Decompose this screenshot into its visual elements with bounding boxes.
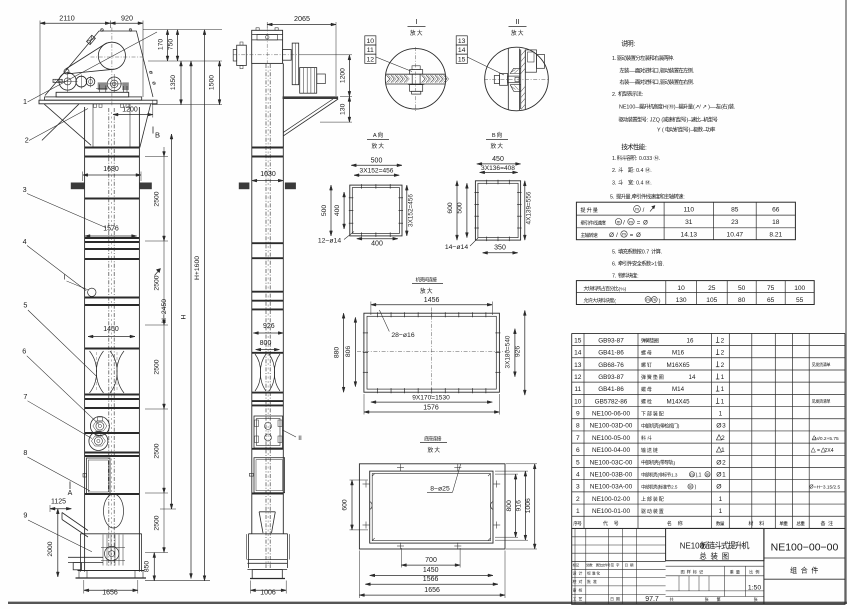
svg-text:M16X65: M16X65 (666, 362, 690, 369)
svg-text:4X139=556: 4X139=556 (525, 191, 532, 224)
svg-text:3X180=540: 3X180=540 (504, 335, 511, 368)
svg-text:8: 8 (576, 423, 580, 430)
svg-text:700: 700 (425, 557, 437, 564)
svg-text:=H−3.15/2.5: =H−3.15/2.5 (814, 485, 841, 491)
svg-text:(↗/ ↗ )——: (↗/ ↗ )—— (693, 105, 721, 111)
svg-text:1350: 1350 (170, 75, 177, 90)
svg-text:130: 130 (340, 103, 347, 115)
svg-text:NE100: NE100 (680, 542, 705, 551)
svg-text:5.: 5. (610, 195, 614, 201)
svg-text:400: 400 (371, 241, 383, 248)
svg-text:800: 800 (260, 340, 272, 347)
svg-text:9: 9 (576, 411, 580, 418)
svg-text:Ø: Ø (716, 484, 722, 491)
svg-text:1: 1 (719, 411, 723, 418)
svg-text:4: 4 (23, 237, 27, 246)
svg-text:7: 7 (23, 392, 27, 401)
svg-text:400: 400 (334, 205, 341, 217)
svg-text:7: 7 (576, 435, 580, 442)
svg-text:1: 1 (721, 447, 725, 454)
svg-text:1: 1 (576, 508, 580, 515)
svg-text:105: 105 (706, 297, 717, 304)
svg-text:9: 9 (23, 511, 27, 520)
svg-text:=H/0.2+5.75: =H/0.2+5.75 (812, 436, 839, 442)
svg-text:10: 10 (677, 285, 685, 292)
svg-text:GB41-86: GB41-86 (598, 386, 624, 393)
svg-text:600: 600 (447, 202, 454, 214)
svg-text:I: I (64, 275, 66, 282)
svg-text:H: H (181, 314, 188, 319)
svg-text:97.7: 97.7 (645, 596, 659, 603)
svg-text:NE100-03B-00: NE100-03B-00 (590, 471, 633, 478)
svg-text:1: 1 (721, 374, 725, 381)
svg-text:8−ø25: 8−ø25 (430, 486, 450, 493)
svg-text:25: 25 (708, 285, 716, 292)
svg-text:110: 110 (684, 207, 695, 214)
svg-text:1: 1 (721, 386, 725, 393)
svg-text:3: 3 (23, 185, 27, 194)
svg-text:2: 2 (721, 350, 725, 357)
svg-text:: 0.4 Ⓜ.: : 0.4 Ⓜ. (633, 166, 652, 174)
svg-text:926: 926 (515, 346, 522, 358)
svg-text:1200: 1200 (122, 106, 138, 113)
svg-text:450: 450 (492, 156, 504, 163)
svg-text::: : (634, 41, 636, 48)
svg-text:170: 170 (158, 39, 165, 51)
svg-text:NE100-05-00: NE100-05-00 (592, 435, 630, 442)
svg-text:1.: 1. (612, 156, 616, 162)
svg-text:14.13: 14.13 (681, 232, 698, 239)
svg-text:>1: >1 (651, 262, 657, 268)
svg-text:130: 130 (676, 297, 687, 304)
svg-text:1576: 1576 (423, 404, 439, 411)
svg-text:NE100-03D-00: NE100-03D-00 (590, 423, 633, 430)
svg-text:600: 600 (342, 499, 349, 511)
svg-text:12−ø14: 12−ø14 (318, 238, 341, 245)
svg-text:: 0.4 Ⓜ.: : 0.4 Ⓜ. (633, 179, 652, 187)
svg-text:GB93-87: GB93-87 (598, 374, 624, 381)
svg-text:2X4: 2X4 (824, 448, 833, 454)
svg-text:926: 926 (263, 323, 275, 330)
svg-text:2500: 2500 (154, 359, 161, 374)
svg-text:6: 6 (22, 346, 26, 355)
svg-text:1200: 1200 (340, 68, 347, 83)
svg-text:NE100-04-00: NE100-04-00 (592, 447, 630, 454)
svg-text:2000: 2000 (47, 541, 54, 556)
svg-text:100: 100 (794, 285, 805, 292)
svg-text:13: 13 (574, 362, 582, 369)
svg-text:I: I (415, 17, 417, 26)
svg-text:1: 1 (719, 496, 723, 503)
svg-text:),1: ),1 (696, 472, 702, 478)
svg-text:1576: 1576 (103, 226, 119, 233)
svg-text:m: m (622, 232, 626, 237)
svg-text:2.5: 2.5 (671, 485, 678, 490)
svg-text:GB41-86: GB41-86 (598, 350, 624, 357)
svg-text:m: m (629, 219, 633, 224)
svg-text:NE100-01-00: NE100-01-00 (592, 508, 630, 515)
svg-text::: : (637, 274, 638, 280)
svg-text:7.: 7. (612, 274, 616, 280)
svg-text:1656: 1656 (424, 587, 440, 594)
svg-text:,: , (631, 195, 632, 201)
svg-text:1125: 1125 (51, 499, 66, 506)
svg-text:10.47: 10.47 (727, 232, 744, 239)
svg-text:2500: 2500 (154, 191, 161, 206)
svg-text:m: m (706, 472, 710, 477)
svg-text:.: . (734, 105, 735, 111)
svg-text:H(Ⓜ)——: H(Ⓜ)—— (663, 103, 687, 111)
svg-text:14: 14 (458, 47, 466, 54)
svg-text:,: , (659, 69, 660, 75)
svg-text:2: 2 (576, 496, 580, 503)
svg-text:Ø: Ø (643, 221, 648, 227)
svg-text:): ) (727, 105, 729, 111)
svg-text:1450: 1450 (423, 567, 439, 574)
svg-text:=: = (817, 448, 820, 454)
svg-text:2110: 2110 (59, 14, 74, 23)
svg-text:B: B (492, 133, 496, 139)
svg-text:12: 12 (367, 56, 375, 63)
svg-text:6: 6 (576, 447, 580, 454)
svg-text:II: II (515, 17, 519, 26)
svg-text:5.: 5. (612, 250, 616, 256)
svg-text:GB93-87: GB93-87 (598, 337, 624, 344)
svg-text:2: 2 (721, 362, 725, 369)
svg-text:m: m (635, 207, 639, 212)
svg-text:50: 50 (738, 285, 746, 292)
svg-text:350: 350 (494, 245, 506, 252)
svg-text:14: 14 (574, 350, 582, 357)
svg-text:65: 65 (767, 297, 775, 304)
svg-text:10: 10 (367, 38, 375, 45)
svg-text:m: m (617, 219, 621, 224)
svg-text:1: 1 (23, 97, 27, 106)
svg-text:14−ø14: 14−ø14 (445, 244, 468, 251)
svg-text:880: 880 (333, 347, 340, 359)
svg-text:m: m (690, 472, 694, 477)
svg-text:3: 3 (576, 484, 580, 491)
svg-text:.: . (693, 69, 694, 75)
svg-text:,: , (659, 80, 660, 86)
svg-text:800: 800 (506, 500, 513, 512)
svg-text:14: 14 (689, 374, 696, 381)
svg-text:.: . (673, 56, 674, 62)
svg-text:3X152=456: 3X152=456 (407, 194, 414, 227)
svg-text:II: II (298, 435, 302, 442)
svg-text::: : (683, 195, 684, 201)
svg-text:H+1600: H+1600 (194, 256, 201, 280)
svg-text:1500: 1500 (209, 75, 216, 90)
svg-text:Ø: Ø (636, 233, 641, 239)
svg-text:): ) (659, 298, 661, 304)
svg-text:GB68-76: GB68-76 (598, 362, 624, 369)
svg-text:12: 12 (574, 374, 582, 381)
svg-text:NE100−00−00: NE100−00−00 (771, 542, 839, 554)
svg-text:10: 10 (574, 398, 582, 405)
svg-text:850: 850 (144, 561, 151, 573)
svg-text:NE100-03A-00: NE100-03A-00 (590, 484, 633, 491)
svg-text:75: 75 (767, 285, 775, 292)
svg-text:.: . (661, 250, 662, 256)
svg-text:1680: 1680 (103, 166, 119, 173)
svg-text:Ø: Ø (609, 232, 614, 239)
svg-text:: 0.033 Ⓜ.: : 0.033 Ⓜ. (636, 154, 661, 162)
svg-text::: : (645, 145, 647, 152)
svg-text:(%): (%) (619, 286, 627, 292)
svg-text:=: = (630, 233, 634, 239)
svg-text:NE100-02-00: NE100-02-00 (592, 496, 630, 503)
svg-text:0.7: 0.7 (642, 250, 649, 256)
svg-text:23: 23 (731, 219, 739, 226)
svg-text:2: 2 (721, 435, 725, 442)
svg-text:)—: )— (689, 128, 697, 134)
svg-text:m: m (646, 297, 650, 302)
svg-text:9X170=1530: 9X170=1530 (412, 395, 450, 402)
svg-text:1: 1 (721, 398, 725, 405)
svg-text:B: B (155, 131, 160, 140)
svg-text:5: 5 (23, 301, 27, 310)
svg-text:2500: 2500 (154, 443, 161, 458)
svg-text:GB5782-86: GB5782-86 (595, 398, 628, 405)
svg-text:18: 18 (772, 219, 780, 226)
svg-text:1450: 1450 (103, 326, 119, 333)
svg-text:80: 80 (738, 297, 746, 304)
svg-text:.: . (693, 80, 694, 86)
svg-text:1:50: 1:50 (748, 585, 761, 592)
svg-text:.: . (662, 262, 663, 268)
svg-text:6.: 6. (612, 262, 616, 268)
svg-text:NE100-03C-00: NE100-03C-00 (590, 459, 633, 466)
svg-text:15: 15 (458, 56, 466, 63)
svg-text:5: 5 (576, 459, 580, 466)
svg-text:8.21: 8.21 (769, 232, 782, 239)
svg-text:1566: 1566 (423, 576, 439, 583)
svg-text:920: 920 (121, 14, 133, 23)
svg-text:500: 500 (371, 157, 383, 164)
svg-text:1456: 1456 (424, 297, 440, 304)
svg-text:2: 2 (722, 459, 726, 466)
svg-text:13: 13 (458, 38, 466, 45)
svg-text:55: 55 (796, 297, 804, 304)
svg-text:3: 3 (722, 423, 726, 430)
svg-text:66: 66 (772, 207, 780, 214)
svg-text:2: 2 (721, 337, 725, 344)
svg-text:NE100-06-00: NE100-06-00 (592, 411, 630, 418)
svg-text:2500: 2500 (154, 275, 161, 290)
svg-text:4: 4 (576, 471, 580, 478)
svg-text:2065: 2065 (294, 14, 310, 23)
svg-text:1: 1 (719, 508, 723, 515)
svg-text:1030: 1030 (260, 171, 276, 178)
svg-text:500: 500 (457, 202, 464, 214)
svg-text:A: A (68, 490, 73, 497)
svg-text:A: A (373, 133, 377, 139)
svg-text:H−2450: H−2450 (161, 299, 168, 323)
svg-text:2.: 2. (612, 92, 616, 98)
svg-text:11: 11 (367, 47, 374, 54)
svg-text:28−ø16: 28−ø16 (391, 332, 414, 339)
svg-text:M14: M14 (672, 386, 685, 393)
svg-text:Y (: Y ( (657, 128, 664, 134)
svg-text:M16: M16 (672, 350, 685, 357)
svg-text:=: = (637, 221, 641, 227)
svg-text:916: 916 (515, 500, 522, 512)
svg-text:85: 85 (731, 207, 739, 214)
svg-text:11: 11 (574, 386, 581, 393)
svg-text:1.: 1. (612, 56, 616, 62)
svg-text:2500: 2500 (154, 515, 161, 530)
svg-text:750: 750 (168, 39, 175, 51)
svg-text:1.3: 1.3 (671, 472, 678, 477)
svg-text:3X152=456: 3X152=456 (360, 168, 394, 175)
svg-text:m: m (689, 484, 693, 489)
svg-text:15: 15 (574, 337, 582, 344)
svg-text:M14X45: M14X45 (666, 398, 690, 405)
svg-text:806: 806 (345, 346, 352, 358)
svg-text:500: 500 (321, 205, 328, 217)
svg-text:m: m (652, 297, 656, 302)
svg-text:3X136=408: 3X136=408 (481, 165, 515, 172)
svg-text:16: 16 (687, 337, 694, 344)
svg-text:3.: 3. (612, 181, 616, 187)
svg-text:1: 1 (722, 471, 726, 478)
svg-text:: JZQ (: : JZQ ( (647, 118, 664, 124)
svg-text:1006: 1006 (525, 498, 532, 513)
svg-text:2: 2 (25, 136, 29, 145)
svg-text:8: 8 (23, 448, 27, 457)
svg-text::: : (642, 92, 643, 98)
svg-text:31: 31 (685, 219, 693, 226)
svg-text:2.: 2. (612, 168, 616, 174)
